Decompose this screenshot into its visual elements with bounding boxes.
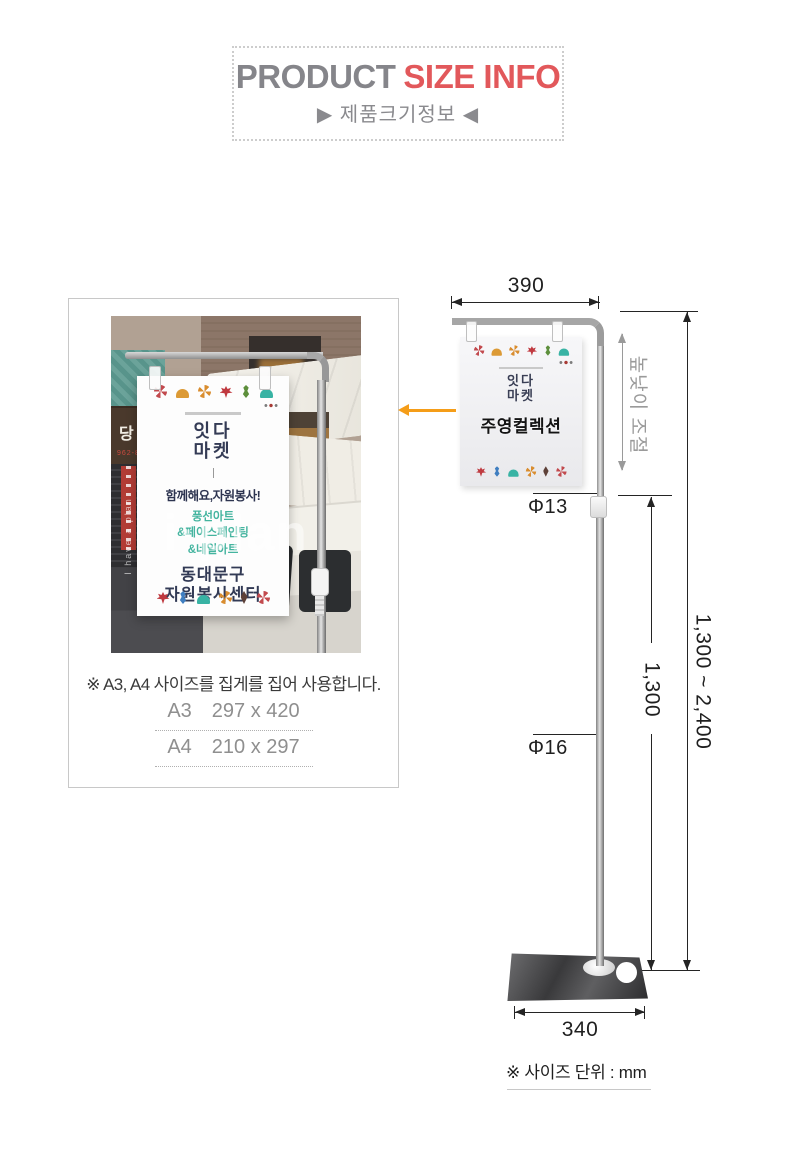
- header-box: PRODUCTSIZE INFO ▶ 제품크기정보 ◀: [232, 46, 564, 141]
- dim-upper-diameter-label: Φ13: [528, 496, 598, 519]
- stand-lower-pole: [596, 518, 604, 964]
- maple-icon: [476, 467, 486, 477]
- poster-decor-bottom: [137, 591, 289, 604]
- dim-top-width-label: 390: [452, 274, 600, 298]
- dim-line: [651, 497, 652, 643]
- dim-total-height-label: 1,300 ~ 2,400: [693, 602, 714, 762]
- paper-size-table: A3 297 x 420 A4 210 x 297: [155, 695, 313, 767]
- pinwheel-icon: [198, 385, 211, 398]
- dim-arrow-icon: [515, 1008, 525, 1016]
- dim-arrow-icon: [635, 1008, 645, 1016]
- stand-upper-pole: [597, 346, 604, 498]
- dim-height-adjust-label: 높낮이 조절: [630, 335, 650, 475]
- dim-arrow-icon: [647, 497, 655, 507]
- poster-divider: [213, 468, 214, 478]
- dim-pole-height-label: 1,300: [642, 650, 663, 730]
- unit-note: ※ 사이즈 단위 : mm: [506, 1058, 646, 1083]
- product-photo: 당한의원 962-8000 잇다 마켓 함께해요,자원봉사! 풍선아트 &페이스…: [111, 316, 361, 653]
- oak-icon: [544, 345, 551, 355]
- unit-note-underline: [507, 1089, 651, 1090]
- diagram-poster-title: 주영컬렉션: [481, 412, 562, 437]
- poster-decor-bottom: [472, 466, 570, 476]
- photo-poster: 잇다 마켓 함께해요,자원봉사! 풍선아트 &페이스페인팅 &네일아트 동대문구…: [137, 376, 289, 616]
- clamp-cord: [315, 596, 324, 616]
- ginkgo-icon: [558, 349, 568, 356]
- poster-small-text: [499, 367, 543, 369]
- maple-icon: [220, 386, 233, 398]
- leaf-icon: [543, 466, 549, 476]
- dim-arrow-icon: [618, 333, 626, 343]
- poster-stamp-icon: [263, 402, 279, 409]
- dim-arrow-icon: [683, 312, 691, 322]
- callout-line: [533, 734, 597, 735]
- page-title-red: SIZE INFO: [403, 58, 560, 95]
- page-subtitle: ▶ 제품크기정보 ◀: [317, 98, 479, 127]
- stand-arm: [125, 352, 323, 359]
- paper-name: A3: [167, 700, 191, 723]
- dim-arrow-icon: [618, 461, 626, 471]
- callout-line: [533, 493, 597, 494]
- pinwheel-icon: [509, 345, 519, 355]
- table-row: A3 297 x 420: [155, 695, 313, 731]
- usage-caption: ※ A3, A4 사이즈를 집게를 집어 사용합니다.: [69, 670, 398, 695]
- height-clamp: [311, 568, 329, 596]
- page-title-gray: PRODUCT: [236, 58, 396, 95]
- pinwheel-icon: [556, 466, 566, 476]
- pinwheel-icon: [473, 345, 483, 355]
- dim-ref-line: [618, 495, 672, 496]
- dim-line: [514, 1012, 645, 1013]
- dim-ref-line: [638, 970, 700, 971]
- ginkgo-icon: [491, 349, 501, 356]
- photo-card: 당한의원 962-8000 잇다 마켓 함께해요,자원봉사! 풍선아트 &페이스…: [68, 298, 399, 788]
- ginkgo-icon: [176, 389, 189, 398]
- dim-lower-diameter-label: Φ16: [528, 737, 598, 760]
- clip-icon: [552, 321, 563, 342]
- poster-decor-top: [154, 385, 273, 398]
- base-plate-notch: [616, 962, 637, 983]
- dim-arrow-icon: [647, 960, 655, 970]
- pinwheel-icon: [525, 466, 535, 476]
- paper-size: 210 x 297: [212, 736, 300, 759]
- table-row: A4 210 x 297: [155, 731, 313, 767]
- poster-slogan: 함께해요,자원봉사!: [166, 485, 261, 504]
- dim-line: [452, 302, 600, 303]
- poster-stamp-icon: [558, 359, 574, 366]
- leaf-icon: [241, 591, 248, 604]
- dim-arrow-icon: [683, 960, 691, 970]
- clip-icon: [466, 321, 477, 342]
- poster-small-text: [185, 412, 241, 415]
- poster-logo-line1: 잇다: [193, 421, 232, 441]
- watermark: i·plan: [111, 504, 361, 562]
- watermark-side: I have a plan: [123, 492, 135, 580]
- paper-size: 297 x 420: [212, 700, 300, 723]
- poster-logo-line1: 잇다: [507, 374, 535, 389]
- stand-pole-foot: [596, 940, 604, 966]
- oak-icon: [242, 385, 251, 398]
- clip-icon: [149, 366, 161, 390]
- oak-icon: [493, 466, 500, 476]
- dim-line: [651, 734, 652, 970]
- reference-arrow-shaft: [409, 409, 456, 412]
- pinwheel-icon: [257, 591, 270, 604]
- poster-logo-line2: 마켓: [193, 441, 232, 461]
- oak-icon: [179, 591, 188, 604]
- diagram-poster: 잇다 마켓 주영컬렉션: [460, 337, 582, 486]
- dim-line: [687, 312, 688, 970]
- pinwheel-icon: [219, 591, 232, 604]
- reference-arrow-icon: [398, 404, 409, 416]
- ginkgo-icon: [260, 389, 273, 398]
- poster-decor-top: [473, 345, 568, 355]
- ginkgo-icon: [197, 595, 210, 604]
- dim-line: [622, 334, 623, 470]
- maple-icon: [526, 346, 536, 356]
- paper-name: A4: [167, 736, 191, 759]
- maple-icon: [157, 592, 170, 604]
- clip-icon: [259, 366, 271, 390]
- height-clamp: [590, 496, 607, 518]
- poster-logo-line2: 마켓: [507, 389, 535, 404]
- ginkgo-icon: [508, 470, 518, 477]
- dim-arrow-icon: [589, 298, 599, 306]
- poster-org1: 동대문구: [181, 565, 246, 586]
- dim-arrow-icon: [452, 298, 462, 306]
- dim-base-width-label: 340: [515, 1018, 645, 1042]
- page-title: PRODUCTSIZE INFO: [236, 60, 561, 93]
- page: { "colors": {"accent_orange": "#f59d18",…: [0, 0, 800, 1159]
